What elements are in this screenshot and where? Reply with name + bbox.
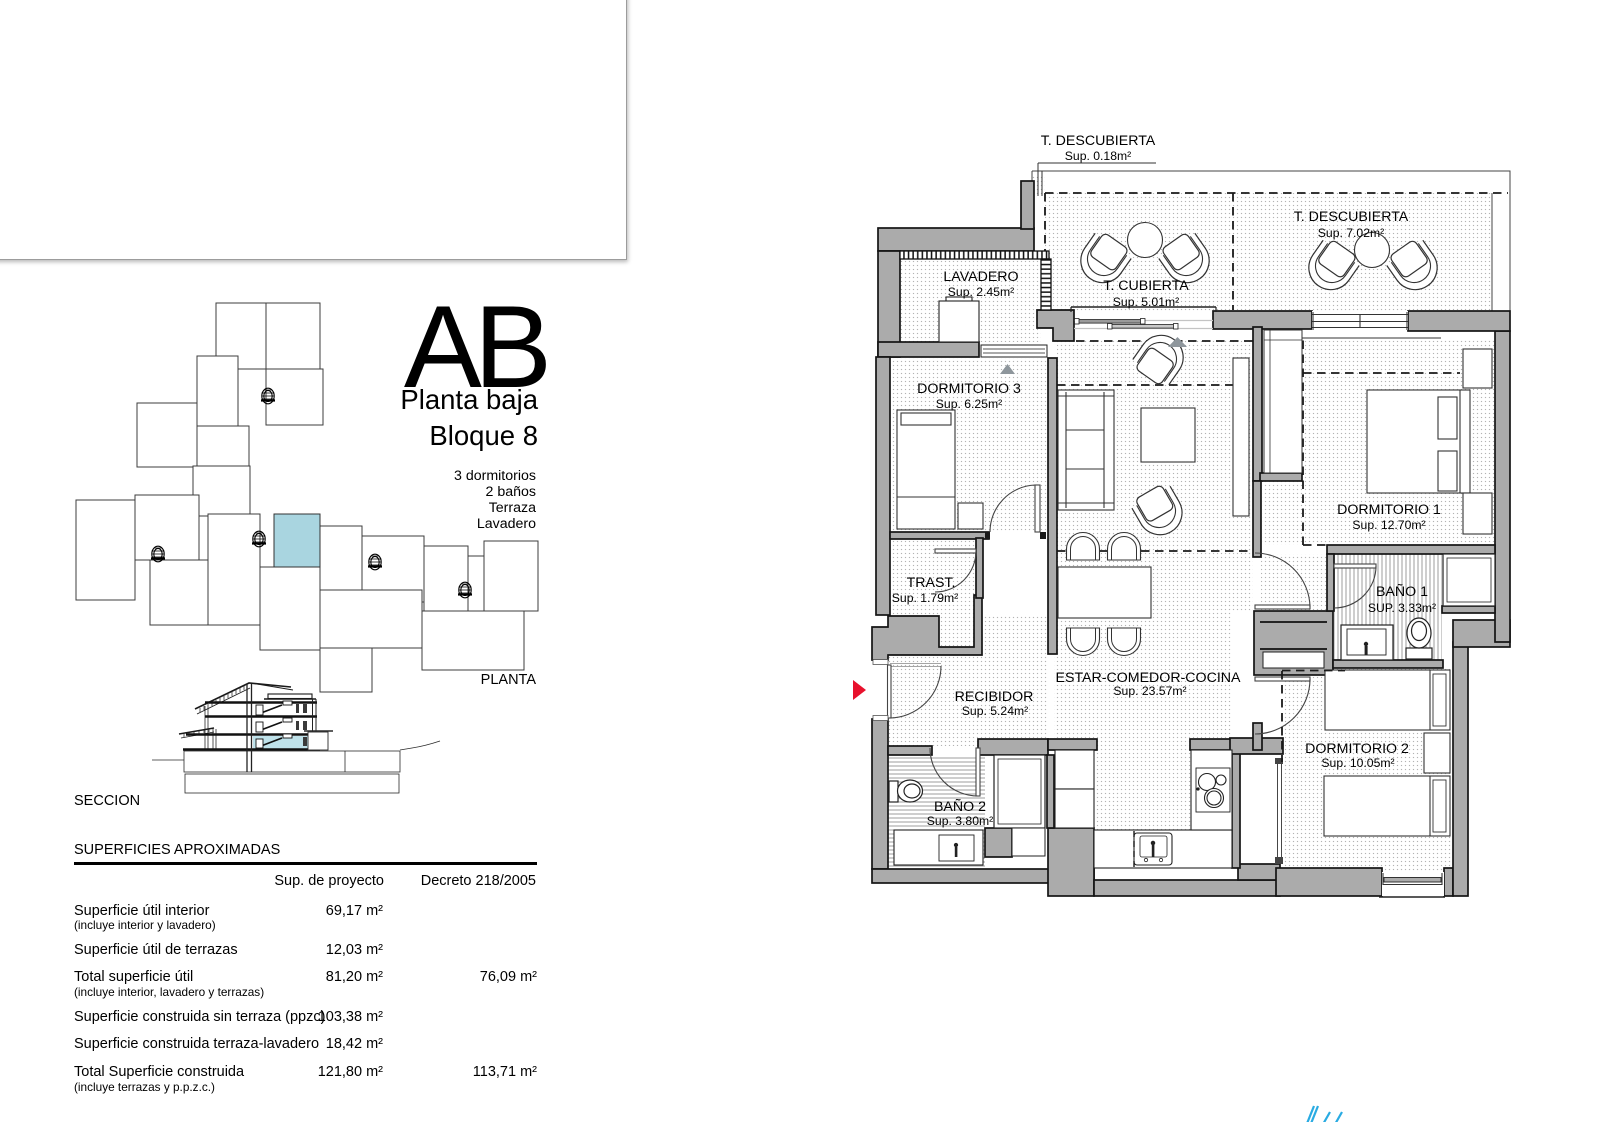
svg-text:BAÑO 1: BAÑO 1 (1376, 583, 1428, 600)
svg-text:Sup. 12.70m²: Sup. 12.70m² (1352, 518, 1425, 532)
svg-text:LAVADERO: LAVADERO (943, 269, 1018, 285)
svg-text:Sup. 5.01m²: Sup. 5.01m² (1113, 295, 1179, 309)
svg-text:T. DESCUBIERTA: T. DESCUBIERTA (1041, 133, 1156, 149)
svg-text:Sup. 0.18m²: Sup. 0.18m² (1065, 149, 1131, 163)
svg-text:Sup. 10.05m²: Sup. 10.05m² (1321, 756, 1394, 770)
svg-text:Sup. 23.57m²: Sup. 23.57m² (1113, 684, 1186, 698)
svg-text:Sup. 1.79m²: Sup. 1.79m² (892, 591, 958, 605)
svg-text:Sup. 5.24m²: Sup. 5.24m² (962, 704, 1028, 718)
svg-text:DORMITORIO 2: DORMITORIO 2 (1305, 741, 1409, 757)
svg-text:Sup. 2.45m²: Sup. 2.45m² (948, 285, 1014, 299)
svg-text:T. CUBIERTA: T. CUBIERTA (1103, 278, 1189, 294)
svg-text:DORMITORIO 1: DORMITORIO 1 (1337, 502, 1441, 518)
svg-text:Sup. 6.25m²: Sup. 6.25m² (936, 397, 1002, 411)
svg-text:RECIBIDOR: RECIBIDOR (955, 689, 1034, 705)
svg-text:Sup. 7.02m²: Sup. 7.02m² (1318, 226, 1384, 240)
svg-text:TRAST.: TRAST. (907, 575, 956, 591)
svg-text:DORMITORIO 3: DORMITORIO 3 (917, 381, 1021, 397)
svg-text:BAÑO 2: BAÑO 2 (934, 798, 986, 815)
svg-text:T. DESCUBIERTA: T. DESCUBIERTA (1294, 209, 1409, 225)
svg-text:SUP. 3.33m²: SUP. 3.33m² (1368, 601, 1436, 615)
svg-text:Sup. 3.80m²: Sup. 3.80m² (927, 814, 993, 828)
